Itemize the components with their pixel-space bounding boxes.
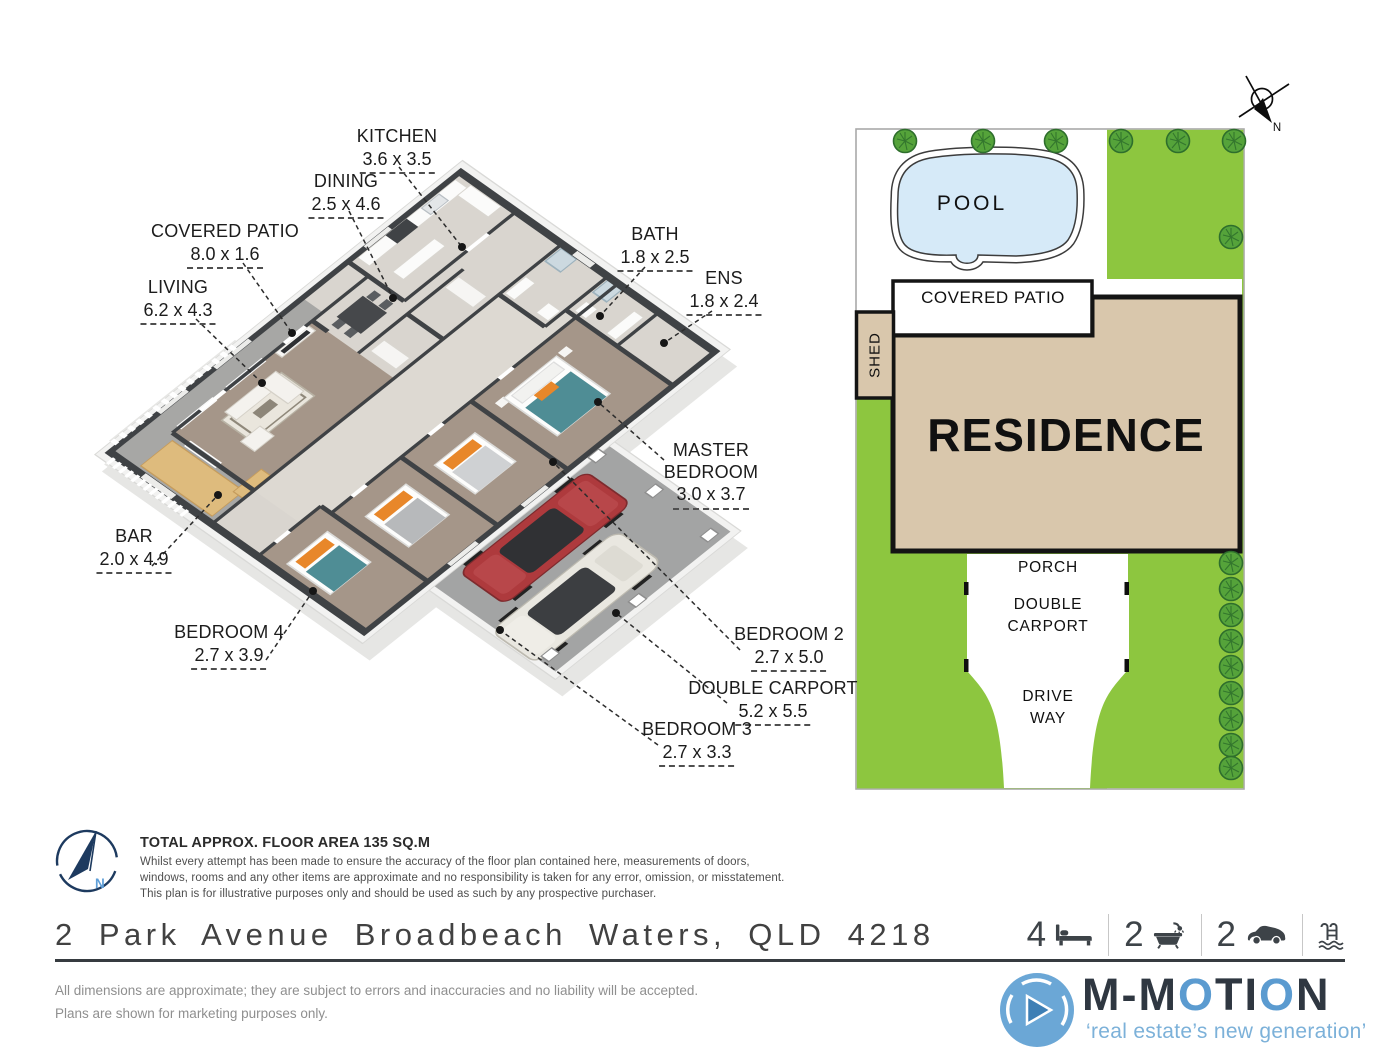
footer-divider — [55, 959, 1345, 962]
residence-label: RESIDENCE — [927, 408, 1204, 462]
site-covered-patio-label: COVERED PATIO — [921, 288, 1065, 308]
bedrooms-stat: 4 — [1027, 915, 1093, 955]
north-compass-n-label: N — [1273, 122, 1281, 134]
brand-wordmark: M-MOTION — [1082, 972, 1331, 1017]
compass-logo-n-label: N — [95, 876, 105, 891]
room-label-master-bedroom: MASTER BEDROOM 3.0 x 3.7 — [663, 440, 759, 510]
room-label-bar: BAR 2.0 x 4.9 — [96, 526, 171, 574]
cars-stat: 2 — [1217, 915, 1287, 955]
compass-logo-icon — [49, 823, 126, 900]
driveway-label: DRIVE WAY — [1022, 686, 1073, 729]
room-label-bedroom-4: BEDROOM 4 2.7 x 3.9 — [174, 622, 284, 670]
room-label-covered-patio: COVERED PATIO 8.0 x 1.6 — [151, 221, 299, 269]
bath-icon — [1153, 920, 1186, 950]
shed-label: SHED — [867, 332, 884, 378]
property-address: 2 Park Avenue Broadbeach Waters, QLD 421… — [55, 917, 935, 953]
brand-tagline: ‘real estate’s new generation’ — [1086, 1020, 1367, 1044]
bed-icon — [1055, 923, 1093, 947]
porch-label: PORCH — [1018, 557, 1078, 579]
property-stats: 4 2 — [1027, 912, 1348, 958]
pool-icon — [1318, 920, 1348, 950]
area-disclaimer-line2: windows, rooms and any other items are a… — [140, 872, 784, 884]
pool-stat — [1318, 920, 1348, 950]
room-label-bedroom-3: BEDROOM 3 2.7 x 3.3 — [642, 719, 752, 767]
site-carport-label: DOUBLE CARPORT — [1007, 594, 1088, 637]
stat-separator — [1108, 914, 1109, 956]
floorplan-page: KITCHEN 3.6 x 3.5 DINING 2.5 x 4.6 COVER… — [0, 0, 1400, 1050]
area-disclaimer-line1: Whilst every attempt has been made to en… — [140, 856, 750, 868]
room-label-bath: BATH 1.8 x 2.5 — [617, 224, 692, 272]
floor-area-title: TOTAL APPROX. FLOOR AREA 135 SQ.M — [140, 835, 430, 851]
footer-disclaimer-line1: All dimensions are approximate; they are… — [55, 983, 698, 998]
stat-separator — [1201, 914, 1202, 956]
room-label-bedroom-2: BEDROOM 2 2.7 x 5.0 — [734, 624, 844, 672]
room-label-living: LIVING 6.2 x 4.3 — [140, 277, 215, 325]
bathrooms-stat: 2 — [1124, 915, 1185, 955]
room-label-kitchen: KITCHEN 3.6 x 3.5 — [357, 126, 437, 174]
room-label-dining: DINING 2.5 x 4.6 — [308, 171, 383, 219]
area-disclaimer-line3: This plan is for illustrative purposes o… — [140, 888, 656, 900]
room-label-ens: ENS 1.8 x 2.4 — [686, 268, 761, 316]
car-icon — [1245, 923, 1287, 947]
north-compass-icon — [1239, 76, 1289, 123]
stat-separator — [1302, 914, 1303, 956]
brand-logo-mark — [1000, 973, 1074, 1047]
pool-label: POOL — [937, 192, 1007, 216]
footer-disclaimer-line2: Plans are shown for marketing purposes o… — [55, 1006, 328, 1021]
